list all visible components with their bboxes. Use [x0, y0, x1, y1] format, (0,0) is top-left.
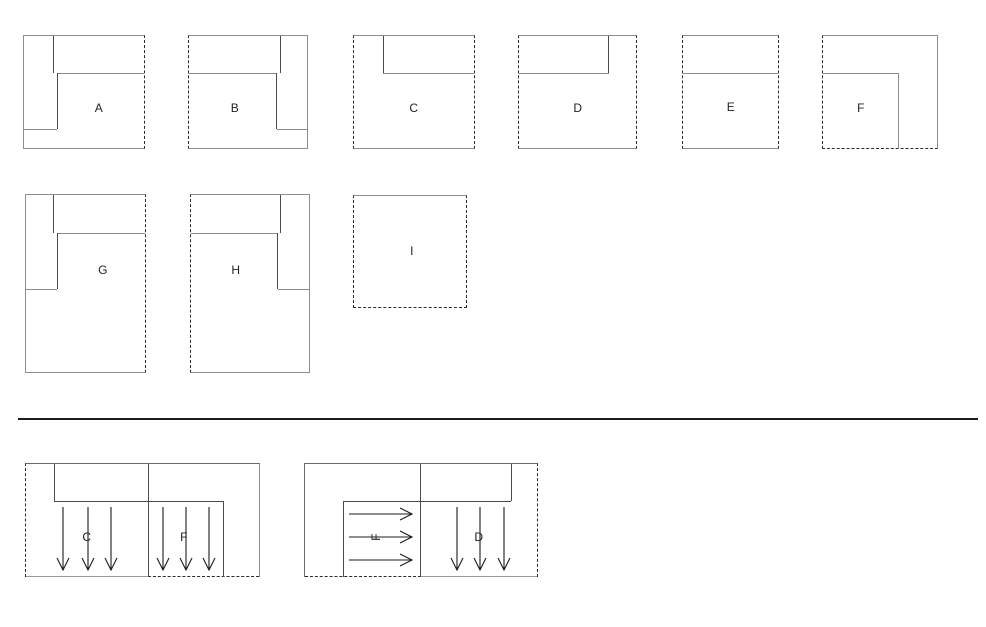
module-h-label: H — [231, 263, 240, 277]
armrest-line — [280, 195, 281, 233]
backrest-line — [54, 501, 223, 502]
module-a-outline: A — [23, 35, 145, 149]
armrest-line — [276, 73, 277, 129]
combo1-module-c-label: C — [82, 530, 91, 544]
right-arrow-icon — [349, 507, 413, 521]
combo2-module-f-label: F — [369, 533, 383, 541]
combo1-module-f-label: F — [180, 530, 188, 544]
armrest-return-line — [26, 289, 57, 290]
front-edge-line — [421, 576, 537, 577]
module-g-outline: G — [25, 194, 146, 373]
backrest-end-line — [54, 464, 55, 501]
module-h-outline: H — [190, 194, 310, 373]
armrest-line — [53, 36, 54, 73]
armrest-line — [57, 73, 58, 129]
module-join-line — [420, 464, 421, 577]
module-d-outline: D — [518, 35, 637, 149]
backrest-line — [823, 73, 899, 74]
backrest-corner-line — [343, 501, 344, 577]
backrest-line — [189, 73, 277, 74]
combo2-module-d-label: D — [474, 530, 483, 544]
backrest-line — [57, 233, 145, 234]
armrest-line — [53, 195, 54, 233]
down-arrow-icon — [450, 507, 464, 571]
module-diagram-page: A B C D E F G H — [0, 0, 986, 627]
down-arrow-icon — [156, 507, 170, 571]
down-arrow-icon — [56, 507, 70, 571]
combination-c-f: C F — [25, 463, 260, 577]
right-arrow-icon — [349, 553, 413, 567]
attachment-edge-line — [148, 576, 259, 577]
backrest-line — [343, 501, 420, 502]
front-edge-line — [26, 576, 148, 577]
armrest-return-line — [277, 129, 307, 130]
section-divider — [18, 418, 978, 420]
armrest-return-line — [24, 129, 57, 130]
module-a-label: A — [95, 101, 104, 115]
down-arrow-icon — [202, 507, 216, 571]
module-e-outline: E — [682, 35, 779, 149]
module-e-label: E — [727, 100, 736, 114]
down-arrow-icon — [497, 507, 511, 571]
backrest-line — [383, 73, 474, 74]
module-d-label: D — [573, 101, 582, 115]
backrest-line — [420, 501, 511, 502]
backrest-corner-line — [898, 73, 899, 148]
attachment-edge-line — [305, 576, 421, 577]
module-c-label: C — [409, 101, 418, 115]
down-arrow-icon — [104, 507, 118, 571]
backrest-line — [683, 73, 778, 74]
module-i-label: I — [410, 244, 414, 258]
backrest-line — [519, 73, 609, 74]
module-g-label: G — [98, 263, 108, 277]
module-f-outline: F — [822, 35, 938, 149]
armrest-line — [57, 233, 58, 289]
module-b-label: B — [231, 101, 240, 115]
module-join-line — [148, 464, 149, 577]
backrest-corner-line — [223, 501, 224, 577]
armrest-line — [280, 36, 281, 73]
backrest-end-line — [383, 36, 384, 73]
backrest-line — [57, 73, 144, 74]
combination-f-d: F D — [304, 463, 538, 577]
armrest-return-line — [278, 289, 309, 290]
backrest-end-line — [608, 36, 609, 73]
module-i-outline: I — [353, 195, 467, 308]
module-c-outline: C — [353, 35, 475, 149]
module-b-outline: B — [188, 35, 308, 149]
backrest-line — [191, 233, 278, 234]
module-f-label: F — [857, 101, 865, 115]
armrest-line — [277, 233, 278, 289]
backrest-end-line — [511, 464, 512, 501]
